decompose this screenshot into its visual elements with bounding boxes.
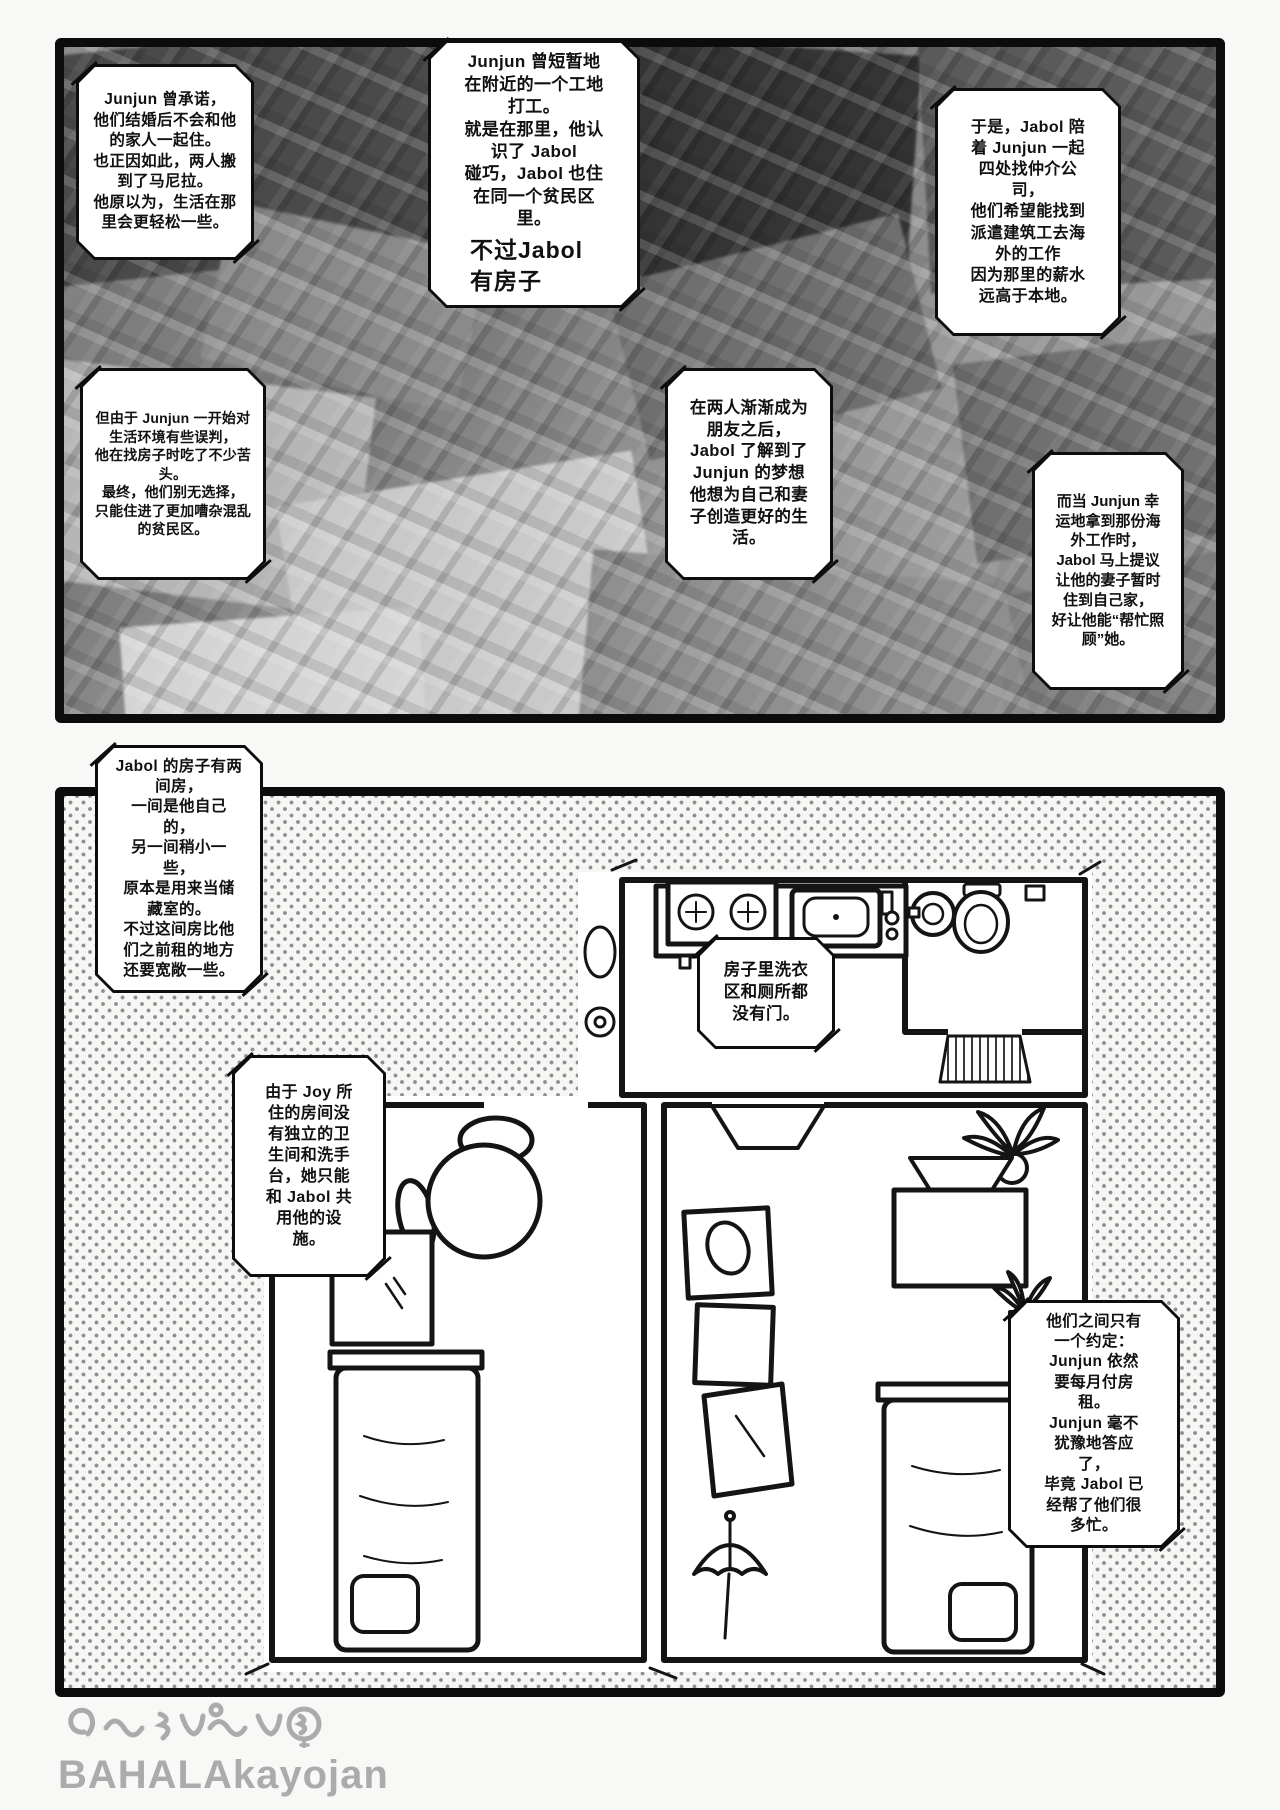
- caption-bubble-nodoors: 房子里洗衣 区和厕所都 没有门。: [697, 937, 835, 1049]
- caption-text: Junjun 曾短暂地 在附近的一个工地 打工。 就是在那里，他认 识了 Jab…: [464, 51, 603, 231]
- caption-bubble-misjudge: 但由于 Junjun 一开始对 生活环境有些误判， 他在找房子时吃了不少苦 头。…: [80, 368, 266, 580]
- caption-bubble-tworooms: Jabol 的房子有两 间房， 一间是他自己 的， 另一间稍小一 些， 原本是用…: [95, 745, 263, 993]
- dining-table: [428, 1145, 540, 1257]
- comic-page: Junjun 曾承诺， 他们结婚后不会和他 的家人一起住。 也正因如此，两人搬 …: [0, 0, 1280, 1810]
- watermark-text: BAHALAkayojan: [58, 1755, 389, 1795]
- caption-text: 房子里洗衣 区和厕所都 没有门。: [724, 960, 809, 1025]
- caption-text: 由于 Joy 所 住的房间没 有独立的卫 生间和洗手 台，她只能 和 Jabol…: [265, 1082, 353, 1251]
- caption-text: Junjun 曾承诺， 他们结婚后不会和他 的家人一起住。 也正因如此，两人搬 …: [93, 90, 236, 233]
- caption-text: 他们之间只有 一个约定： Junjun 依然 要每月付房 租。 Junjun 毫…: [1044, 1312, 1144, 1537]
- caption-text: 但由于 Junjun 一开始对 生活环境有些误判， 他在找房子时吃了不少苦 头。…: [95, 409, 251, 538]
- caption-bubble-rent: 他们之间只有 一个约定： Junjun 依然 要每月付房 租。 Junjun 毫…: [1008, 1300, 1180, 1548]
- pillow: [352, 1576, 418, 1632]
- watermark: BAHALAkayojan: [58, 1702, 389, 1795]
- caption-text: 在两人渐渐成为 朋友之后， Jabol 了解到了 Junjun 的梦想 他想为自…: [690, 398, 808, 550]
- joy-door-gap: [484, 1099, 588, 1111]
- caption-text: Jabol 的房子有两 间房， 一间是他自己 的， 另一间稍小一 些， 原本是用…: [116, 757, 243, 982]
- caption-text: 于是，Jabol 陪 着 Junjun 一起 四处找仲介公 司， 他们希望能找到…: [971, 117, 1086, 307]
- caption-text: 而当 Junjun 幸 运地拿到那份海 外工作时， Jabol 马上提议 让他的…: [1052, 492, 1165, 650]
- baybayin-script-icon: [58, 1702, 368, 1748]
- caption-bubble-agency: 于是，Jabol 陪 着 Junjun 一起 四处找仲介公 司， 他们希望能找到…: [935, 88, 1121, 336]
- caption-bubble-worksite: Junjun 曾短暂地 在附近的一个工地 打工。 就是在那里，他认 识了 Jab…: [428, 40, 640, 308]
- caption-emphasis-text: 不过Jabol 有房子: [436, 235, 583, 297]
- storage-box: [695, 1305, 774, 1386]
- door-swing-hatch: [940, 1036, 1030, 1082]
- caption-bubble-shared: 由于 Joy 所 住的房间没 有独立的卫 生间和洗手 台，她只能 和 Jabol…: [232, 1055, 386, 1277]
- basin-on-desk: [910, 1158, 1012, 1190]
- pillow: [950, 1584, 1016, 1640]
- caption-bubble-promise: Junjun 曾承诺， 他们结婚后不会和他 的家人一起住。 也正因如此，两人搬 …: [76, 64, 254, 260]
- caption-bubble-friends: 在两人渐渐成为 朋友之后， Jabol 了解到了 Junjun 的梦想 他想为自…: [665, 368, 833, 580]
- soap-holder: [1026, 886, 1044, 900]
- leaning-board: [704, 1384, 792, 1496]
- caption-bubble-offer: 而当 Junjun 幸 运地拿到那份海 外工作时， Jabol 马上提议 让他的…: [1032, 452, 1184, 690]
